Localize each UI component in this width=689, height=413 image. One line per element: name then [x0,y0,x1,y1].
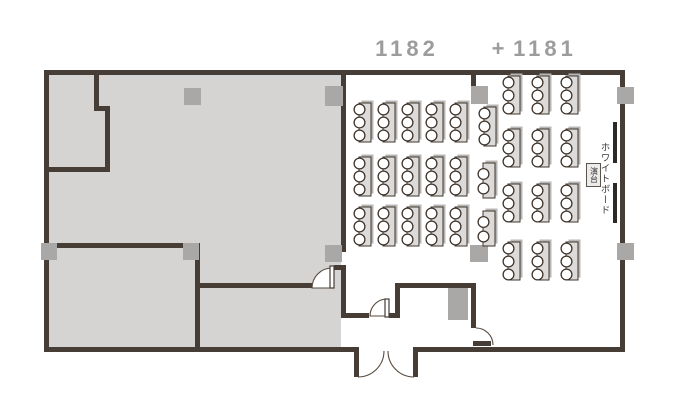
chair-icon [354,184,365,195]
chair-icon [378,104,389,115]
chair-icon [532,198,543,209]
wall-outer-bottom-right [413,347,625,352]
chair-icon [532,143,543,154]
chair-icon [402,117,413,128]
chair-icon [354,117,365,128]
chair-icon [426,221,437,232]
chair-icon [426,117,437,128]
floor-plan-drawing [0,0,689,413]
plus-separator: + [492,36,505,62]
entrance-door-arc-left [358,351,384,377]
entrance-door-arc-right [388,351,414,377]
chair-icon [354,104,365,115]
pillar-right-wall-top [617,87,634,104]
pillar-interior-wall-end [183,243,199,260]
wall-outer-right [620,70,625,352]
chair-icon [503,103,514,114]
chair-icon [426,184,437,195]
chair-icon [479,134,490,145]
chair-icon [426,158,437,169]
chair-icon [378,130,389,141]
whiteboard-segment-top [613,122,617,163]
chair-icon [532,156,543,167]
chair-icon [532,211,543,222]
chair-icon [402,130,413,141]
floor-plan: 1182 + 1181 ホワイトボード 演台 [0,0,689,413]
table-with-chairs [561,74,580,115]
chair-icon [378,184,389,195]
wall-interior-room2-top [195,283,314,288]
table-with-chairs [378,155,397,197]
chair-icon [402,184,413,195]
wall-vestibule-southwest [341,313,369,318]
chair-icon [478,231,489,242]
chair-icon [532,77,543,88]
table-with-chairs [354,101,373,143]
whiteboard [613,122,617,223]
wall-vestibule-west [341,265,346,317]
chair-icon [450,117,461,128]
chair-icon [561,256,572,267]
table-with-chairs [561,127,580,168]
chair-icon [503,143,514,154]
chair-icon [354,171,365,182]
wall-vestibule-east [471,283,476,328]
chair-icon [354,130,365,141]
table-with-chairs [426,205,445,247]
chair-icon [426,171,437,182]
chair-icon [378,171,389,182]
table-with-chairs [450,155,469,197]
chair-icon [479,108,490,119]
whiteboard-segment-bottom [613,183,617,223]
chair-icon [561,130,572,141]
table-with-chairs [561,240,580,281]
entrance-door-leaf-right [413,347,418,377]
table-with-chairs [479,105,498,147]
chair-icon [532,269,543,280]
chair-icon [561,103,572,114]
table-with-chairs [532,240,551,281]
chair-icon [354,208,365,219]
table-with-chairs [478,161,497,199]
chair-icon [378,158,389,169]
lectern: 演台 [586,163,601,187]
chair-icon [450,171,461,182]
pillar-gray-room-top [184,88,201,105]
table-with-chairs [503,74,522,115]
chair-icon [426,208,437,219]
wall-outer-left [44,70,49,352]
table-with-chairs [426,101,445,143]
chair-icon [561,90,572,101]
chair-icon [561,185,572,196]
chair-icon [450,158,461,169]
table-with-chairs [354,205,373,247]
table-with-chairs [402,205,421,247]
chair-icon [402,158,413,169]
table-with-chairs [503,240,522,281]
chair-icon [503,156,514,167]
chair-icon [402,171,413,182]
chair-icon [561,77,572,88]
chair-icon [561,143,572,154]
pillar-vestibule [448,288,468,320]
chair-icon [478,217,489,228]
table-with-chairs [354,155,373,197]
wall-vestibule-north [395,283,476,288]
chair-icon [402,234,413,245]
chair-icon [479,121,490,132]
table-with-chairs [532,127,551,168]
pillar-partition-bottom [470,245,488,262]
chair-icon [561,269,572,280]
chair-icon [561,156,572,167]
door-leaf-gray-room [330,266,334,288]
wall-interior-room-top [49,243,196,248]
chair-icon [378,221,389,232]
chair-icon [450,104,461,115]
wall-closet-v2 [105,106,110,171]
wall-closet-bottom [49,167,110,172]
chair-icon [402,221,413,232]
table-with-chairs [450,205,469,247]
chair-icon [426,104,437,115]
door-leaf-room-1182 [385,299,389,317]
chair-icon [503,243,514,254]
chair-icon [532,243,543,254]
wall-outer-bottom-left [44,347,358,352]
table-with-chairs [503,127,522,168]
chair-icon [354,221,365,232]
chair-icon [378,117,389,128]
chair-icon [450,234,461,245]
table-with-chairs [450,101,469,143]
pillar-gray-room-bottom-right [325,245,342,262]
entrance-door-leaf-left [354,347,359,377]
chair-icon [561,243,572,254]
pillar-right-wall-bottom [617,243,634,260]
table-with-chairs [532,74,551,115]
chair-icon [450,130,461,141]
table-with-chairs [378,101,397,143]
table-with-chairs [561,182,580,223]
chair-icon [426,234,437,245]
table-with-chairs [503,182,522,223]
wall-outer-top [44,70,625,75]
chair-icon [426,130,437,141]
chair-icon [532,185,543,196]
chair-icon [450,208,461,219]
chair-icon [503,77,514,88]
wall-closet-v1 [94,75,99,108]
table-with-chairs [402,155,421,197]
chair-icon [402,208,413,219]
door-leaf-room-1181 [473,341,491,346]
chair-icon [503,90,514,101]
chair-icon [354,158,365,169]
chair-icon [354,234,365,245]
table-with-chairs [402,101,421,143]
chair-icon [532,90,543,101]
chair-icon [561,198,572,209]
table-with-chairs [532,182,551,223]
table-with-chairs [378,205,397,247]
chair-icon [378,208,389,219]
chair-icon [378,234,389,245]
chair-icon [532,103,543,114]
chair-icon [503,198,514,209]
chair-icon [503,185,514,196]
chair-icon [503,269,514,280]
chair-icon [532,130,543,141]
room-number-1182: 1182 [375,36,439,62]
chair-icon [478,169,489,180]
chair-icon [478,183,489,194]
chair-icon [503,211,514,222]
chair-icon [402,104,413,115]
chair-icon [561,211,572,222]
table-with-chairs [478,209,497,247]
chair-icon [503,130,514,141]
chair-icon [503,256,514,267]
room-number-1181: 1181 [513,36,577,62]
wall-vestibule-jog [395,285,400,318]
tables [354,74,580,281]
chair-icon [450,184,461,195]
pillar-left-wall [41,243,57,260]
pillar-partition-top [471,86,488,104]
chair-icon [450,221,461,232]
pillar-gray-room-top-right [325,86,343,106]
table-with-chairs [426,155,445,197]
chair-icon [532,256,543,267]
